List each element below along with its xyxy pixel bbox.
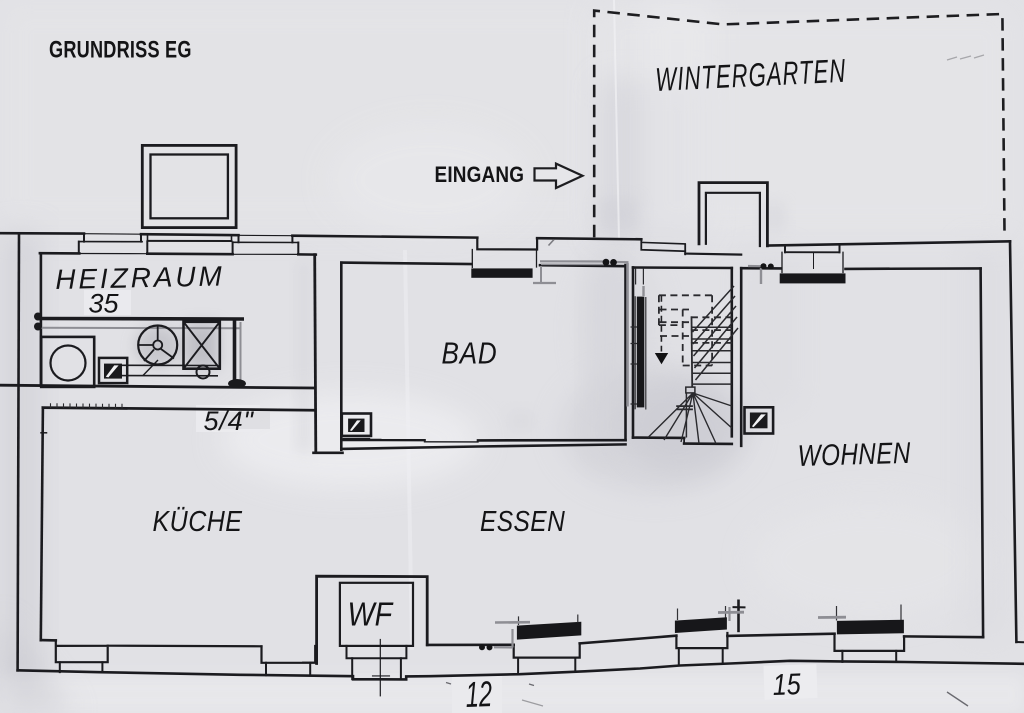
svg-text:5/4": 5/4" xyxy=(204,406,255,436)
svg-text:15: 15 xyxy=(772,667,802,702)
svg-text:12: 12 xyxy=(465,674,493,713)
svg-text:GRUNDRISS EG: GRUNDRISS EG xyxy=(49,35,192,63)
svg-text:ESSEN: ESSEN xyxy=(480,505,566,537)
svg-text:WOHNEN: WOHNEN xyxy=(797,435,911,472)
svg-text:35: 35 xyxy=(89,289,120,319)
svg-text:WF: WF xyxy=(348,596,395,633)
svg-text:HEIZRAUM: HEIZRAUM xyxy=(55,260,225,295)
svg-text:BAD: BAD xyxy=(442,336,498,371)
svg-text:EINGANG: EINGANG xyxy=(435,164,525,187)
svg-text:KÜCHE: KÜCHE xyxy=(153,506,244,538)
